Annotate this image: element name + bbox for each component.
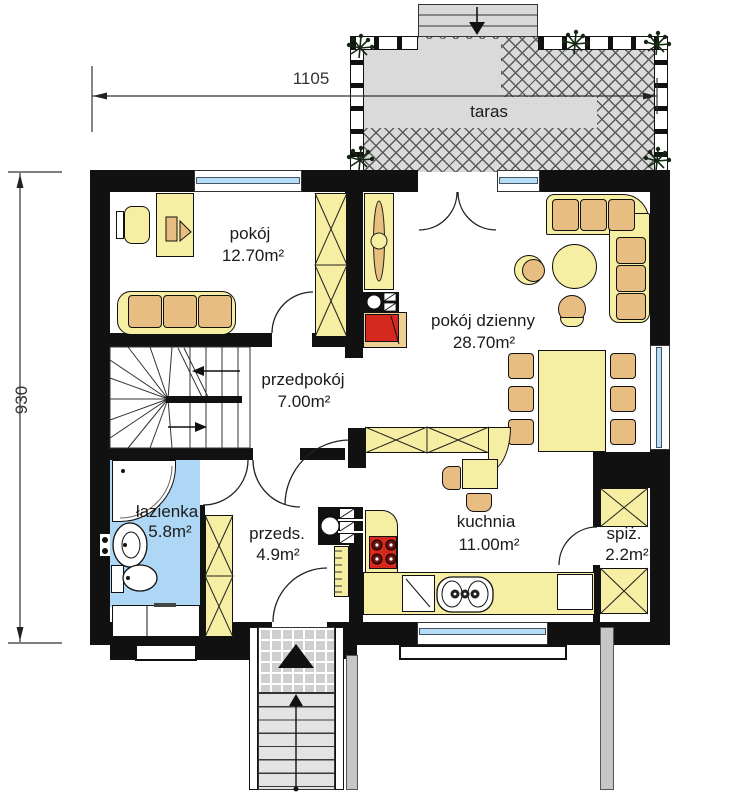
room-label-przeds: przeds. (249, 524, 305, 544)
wall (593, 452, 651, 488)
kitchen-counter (365, 427, 489, 453)
desk (156, 193, 194, 257)
sofa-cushion (128, 295, 162, 328)
wall (650, 450, 670, 622)
desk-chair-back (116, 211, 124, 239)
kitchen-cabinet (557, 574, 593, 610)
room-area-przeds: 4.9m² (256, 545, 299, 565)
coffee-table (552, 244, 597, 289)
wall (110, 333, 272, 347)
floor-plan: 1105 930 taras pokój 12.70m² pokój dzien… (0, 0, 735, 800)
stove (369, 536, 397, 569)
counter-handle (154, 603, 176, 607)
exterior-stairs (258, 693, 335, 790)
room-label-pokoj-dzienny: pokój dzienny (431, 311, 535, 331)
room-area-przedpokoj: 7.00m² (278, 392, 331, 412)
sofa-cushion (198, 295, 232, 328)
downpipe-post (600, 627, 614, 790)
sofa-cushion (616, 265, 646, 292)
terrace-plain-patch (353, 97, 597, 128)
room-label-przedpokoj: przedpokój (261, 370, 344, 390)
window-glass (499, 177, 538, 184)
sofa-cushion (608, 199, 635, 231)
pantry-shelf (600, 488, 648, 527)
dining-chair (610, 353, 636, 379)
sofa-cushion (163, 295, 197, 328)
kitchen-table (462, 459, 498, 489)
wall (90, 170, 110, 645)
kitchen-chair (442, 466, 461, 490)
chimney-block (318, 507, 363, 545)
window-glass (419, 628, 546, 635)
radiator (334, 546, 349, 597)
sofa-cushion (552, 199, 579, 231)
kitchen-chair (466, 493, 492, 512)
pantry-shelf (600, 568, 648, 614)
window-sill (399, 645, 567, 660)
terrace-railing-right (654, 36, 668, 172)
wall (300, 448, 345, 460)
dining-chair (508, 386, 534, 412)
sofa-cushion (616, 293, 646, 320)
desk-chair (124, 206, 150, 244)
window-glass (196, 177, 300, 184)
sofa-cushion (580, 199, 607, 231)
pouffe-seat (522, 259, 545, 282)
room-area-spiz: 2.2m² (605, 545, 648, 565)
terrace-railing-top-left (350, 36, 418, 50)
terrace-steps (418, 4, 538, 37)
dining-chair (508, 353, 534, 379)
room-label-pokoj: pokój (230, 224, 271, 244)
interior-stairs (110, 347, 250, 448)
dimension-left: 930 (12, 376, 32, 424)
dining-chair (610, 386, 636, 412)
chimney-exterior (135, 644, 197, 661)
room-area-pokoj-dzienny: 28.70m² (453, 333, 515, 353)
terrace-railing-top-right (538, 36, 668, 50)
wardrobe (205, 515, 233, 637)
fireplace-red-seat (365, 314, 399, 342)
room-area-pokoj: 12.70m² (222, 246, 284, 266)
porch-side-rail (249, 627, 258, 790)
wall (110, 448, 253, 460)
wall (349, 545, 363, 622)
stairs-landing-edge (166, 396, 242, 403)
wardrobe (315, 193, 347, 337)
wall (593, 488, 600, 527)
wall (302, 170, 418, 192)
room-area-kuchnia: 11.00m² (458, 535, 519, 555)
dining-table (538, 350, 606, 452)
wall (348, 428, 366, 468)
terrace-railing-left (350, 36, 364, 172)
pouffe-base (560, 317, 584, 327)
dishwasher (402, 575, 435, 612)
wall (650, 170, 670, 345)
room-label-spiz: spiż. (607, 524, 642, 544)
window-glass (656, 347, 662, 448)
toilet-tank (111, 565, 124, 593)
dimension-top: 1105 (293, 69, 330, 89)
dining-chair (508, 419, 534, 445)
bathroom-counter (112, 605, 200, 637)
sofa-cushion (616, 237, 646, 264)
fireplace-top (362, 292, 399, 312)
entrance-porch (258, 627, 335, 693)
room-label-kuchnia: kuchnia (457, 512, 516, 532)
hall-cabinet (364, 193, 394, 290)
side-strip (346, 655, 358, 790)
dining-chair (610, 419, 636, 445)
stairs-direction-arrows (168, 366, 240, 432)
